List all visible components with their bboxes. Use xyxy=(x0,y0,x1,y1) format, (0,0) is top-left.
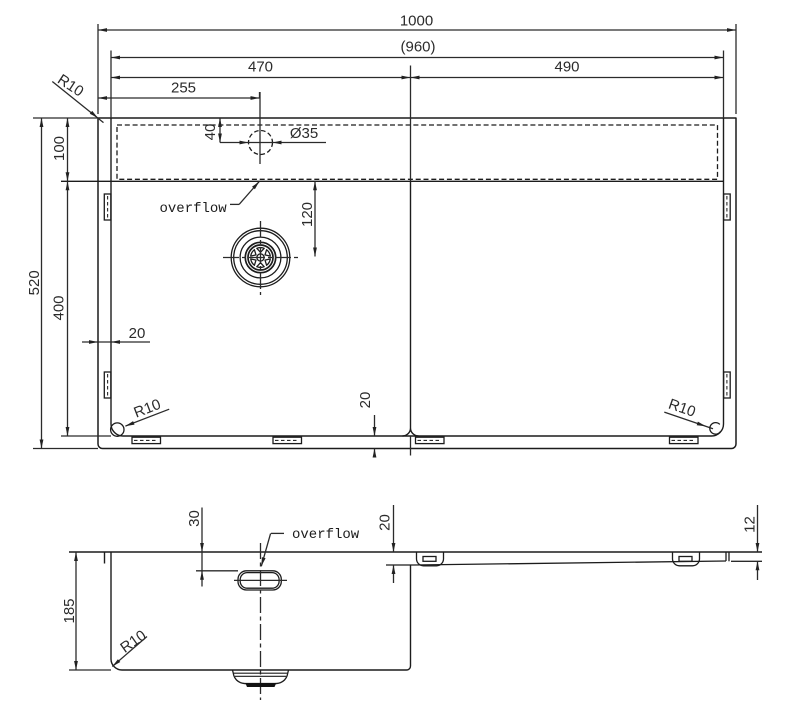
svg-text:490: 490 xyxy=(554,59,579,76)
svg-text:12: 12 xyxy=(742,516,759,533)
svg-text:overflow: overflow xyxy=(160,201,228,217)
svg-text:185: 185 xyxy=(61,598,78,623)
svg-text:overflow: overflow xyxy=(292,527,360,543)
svg-text:400: 400 xyxy=(51,295,68,320)
svg-text:20: 20 xyxy=(377,514,394,531)
svg-text:30: 30 xyxy=(186,510,203,527)
svg-text:1000: 1000 xyxy=(400,13,433,30)
svg-text:20: 20 xyxy=(357,392,374,409)
svg-text:255: 255 xyxy=(171,80,196,97)
svg-text:470: 470 xyxy=(248,59,273,76)
svg-text:Ø35: Ø35 xyxy=(290,125,318,142)
svg-text:120: 120 xyxy=(299,202,316,227)
svg-text:520: 520 xyxy=(26,270,43,295)
svg-text:20: 20 xyxy=(129,325,146,342)
svg-text:100: 100 xyxy=(51,136,68,161)
svg-text:40: 40 xyxy=(202,124,219,141)
svg-text:(960): (960) xyxy=(400,39,435,56)
